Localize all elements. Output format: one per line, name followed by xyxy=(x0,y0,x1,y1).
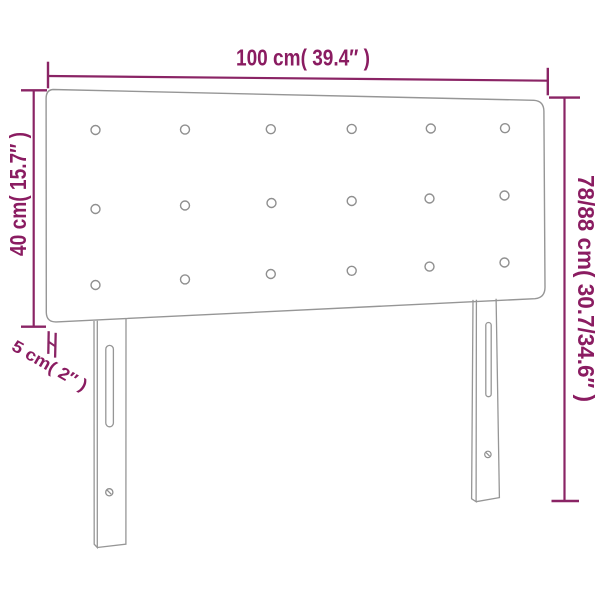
svg-text:78/88 cm( 30.7/34.6″ ): 78/88 cm( 30.7/34.6″ ) xyxy=(573,175,599,402)
svg-text:100 cm( 39.4″ ): 100 cm( 39.4″ ) xyxy=(236,45,370,71)
svg-text:40 cm( 15.7″ ): 40 cm( 15.7″ ) xyxy=(5,132,31,256)
